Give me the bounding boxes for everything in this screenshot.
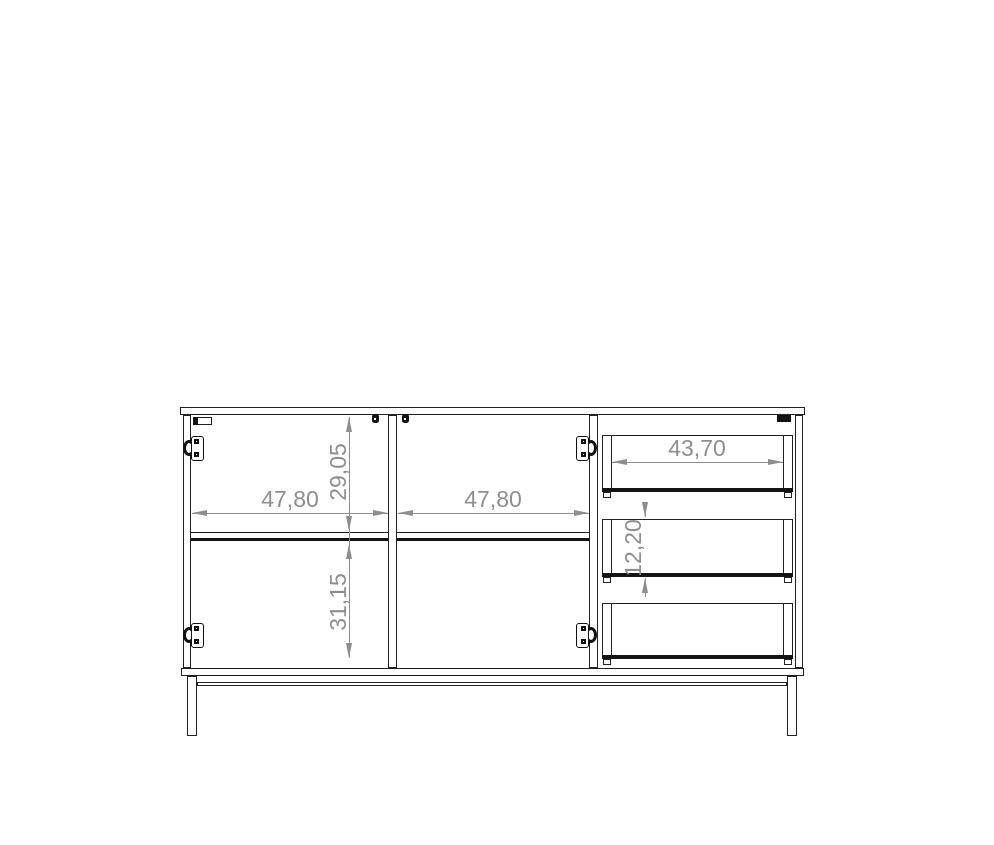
hinge-bottom-left <box>183 623 205 649</box>
arrowhead-icon <box>612 459 627 465</box>
right-side-panel <box>795 415 803 668</box>
top-panel <box>180 407 805 415</box>
plinth-rail <box>181 668 804 676</box>
hinge-top-left <box>183 436 205 462</box>
drawer-side-rail <box>783 603 793 659</box>
drawer-foot <box>784 659 792 665</box>
hinge-screw <box>194 639 199 644</box>
drawer-top-edge <box>611 603 784 604</box>
hinge-top-right <box>575 436 597 462</box>
drawer-bottom-panel <box>602 488 793 492</box>
dim-label-left-door-width: 47,80 <box>250 487 330 511</box>
drawer-side-rail <box>602 519 612 577</box>
drawer-foot <box>603 577 611 583</box>
arrowhead-icon <box>346 544 352 559</box>
corner-bracket-lock <box>193 417 198 425</box>
drawer-side-rail <box>783 435 793 492</box>
hinge-screw <box>194 626 199 631</box>
arrowhead-icon <box>346 417 352 432</box>
arrowhead-icon <box>768 459 783 465</box>
cam-screw-right <box>402 414 409 423</box>
drawer-side-rail <box>783 519 793 577</box>
hinge-screw <box>581 452 586 457</box>
drawer-foot <box>603 492 611 498</box>
drawer-foot <box>603 659 611 665</box>
left-leg <box>187 676 197 736</box>
arrowhead-icon <box>192 510 207 516</box>
dim-label-bottom-section-height: 31,15 <box>326 562 350 642</box>
cam-screw-left <box>372 414 379 423</box>
right-leg <box>787 676 797 736</box>
drawer-foot <box>784 492 792 498</box>
hinge-screw <box>581 639 586 644</box>
drawer-side-rail <box>602 603 612 659</box>
drawer-side-rail <box>602 435 612 492</box>
dimension-line-left-door <box>192 513 388 514</box>
dim-label-drawer-height: 12,20 <box>621 508 645 588</box>
shelf-left-back-edge <box>191 532 388 533</box>
corner-fitting-right <box>777 415 791 422</box>
arrowhead-icon <box>346 643 352 658</box>
arrowhead-icon <box>373 510 388 516</box>
drawer-bottom-panel <box>602 655 793 659</box>
dimension-line-right-door <box>398 513 589 514</box>
center-partition <box>388 415 397 668</box>
dim-label-top-section-height: 29,05 <box>326 432 350 512</box>
dim-label-drawer-width: 43,70 <box>657 436 737 460</box>
dimension-line-drawer-width <box>612 462 783 463</box>
hinge-screw <box>581 626 586 631</box>
arrowhead-icon <box>398 510 413 516</box>
hinge-screw <box>194 439 199 444</box>
dim-label-right-door-width: 47,80 <box>453 487 533 511</box>
arrowhead-icon <box>574 510 589 516</box>
cabinet-technical-drawing: 47,80 47,80 43,70 29,05 31,15 12,20 <box>0 0 994 845</box>
hinge-screw <box>194 452 199 457</box>
hinge-screw <box>581 439 586 444</box>
arrowhead-icon <box>346 516 352 531</box>
shelf-left-front-edge <box>191 538 388 541</box>
shelf-right-front-edge <box>397 538 589 541</box>
hinge-bottom-right <box>575 623 597 649</box>
leg-stretcher <box>197 682 787 686</box>
shelf-right-back-edge <box>397 532 589 533</box>
drawer-foot <box>784 577 792 583</box>
